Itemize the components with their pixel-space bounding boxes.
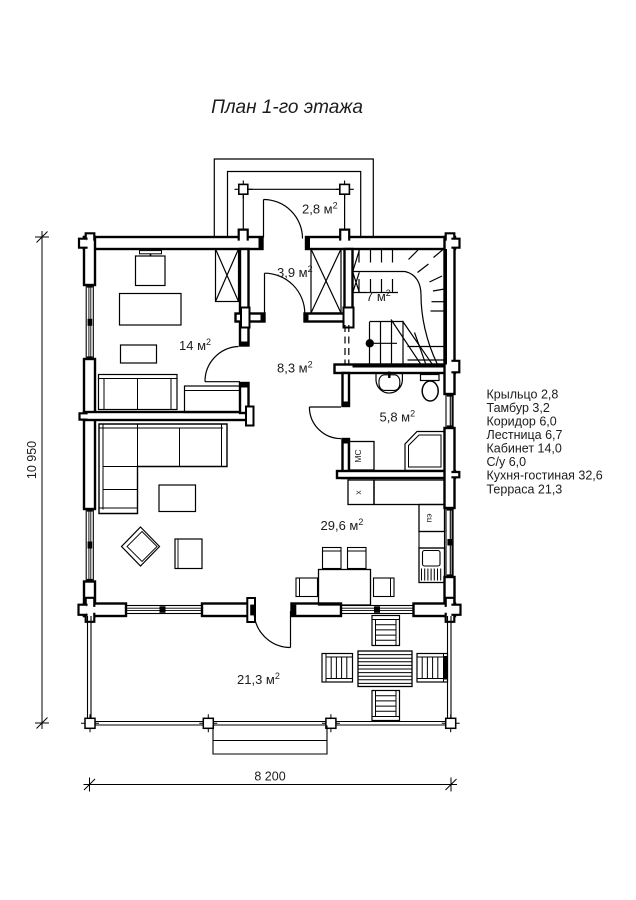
svg-text:Терраса 21,3: Терраса 21,3: [487, 483, 563, 497]
svg-text:Коридор 6,0: Коридор 6,0: [487, 415, 557, 429]
svg-text:С/у 6,0: С/у 6,0: [487, 455, 527, 469]
svg-text:8 200: 8 200: [254, 770, 285, 784]
svg-text:10 950: 10 950: [25, 441, 39, 479]
svg-text:пэ: пэ: [424, 514, 434, 523]
svg-text:Кабинет 14,0: Кабинет 14,0: [487, 442, 562, 456]
svg-text:МС: МС: [353, 449, 363, 462]
svg-text:29,6 м2: 29,6 м2: [321, 517, 364, 533]
svg-text:2,8 м2: 2,8 м2: [302, 201, 338, 217]
svg-text:3,9 м2: 3,9 м2: [277, 264, 313, 280]
svg-text:Кухня-гостиная 32,6: Кухня-гостиная 32,6: [487, 469, 603, 483]
svg-text:План 1-го этажа: План 1-го этажа: [211, 97, 363, 118]
svg-text:5,8 м2: 5,8 м2: [380, 409, 416, 425]
svg-text:8,3 м2: 8,3 м2: [277, 360, 313, 376]
svg-text:Крыльцо 2,8: Крыльцо 2,8: [487, 388, 559, 402]
svg-text:Лестница 6,7: Лестница 6,7: [487, 428, 563, 442]
svg-text:21,3 м2: 21,3 м2: [237, 671, 280, 687]
svg-text:Тамбур 3,2: Тамбур 3,2: [487, 401, 550, 415]
